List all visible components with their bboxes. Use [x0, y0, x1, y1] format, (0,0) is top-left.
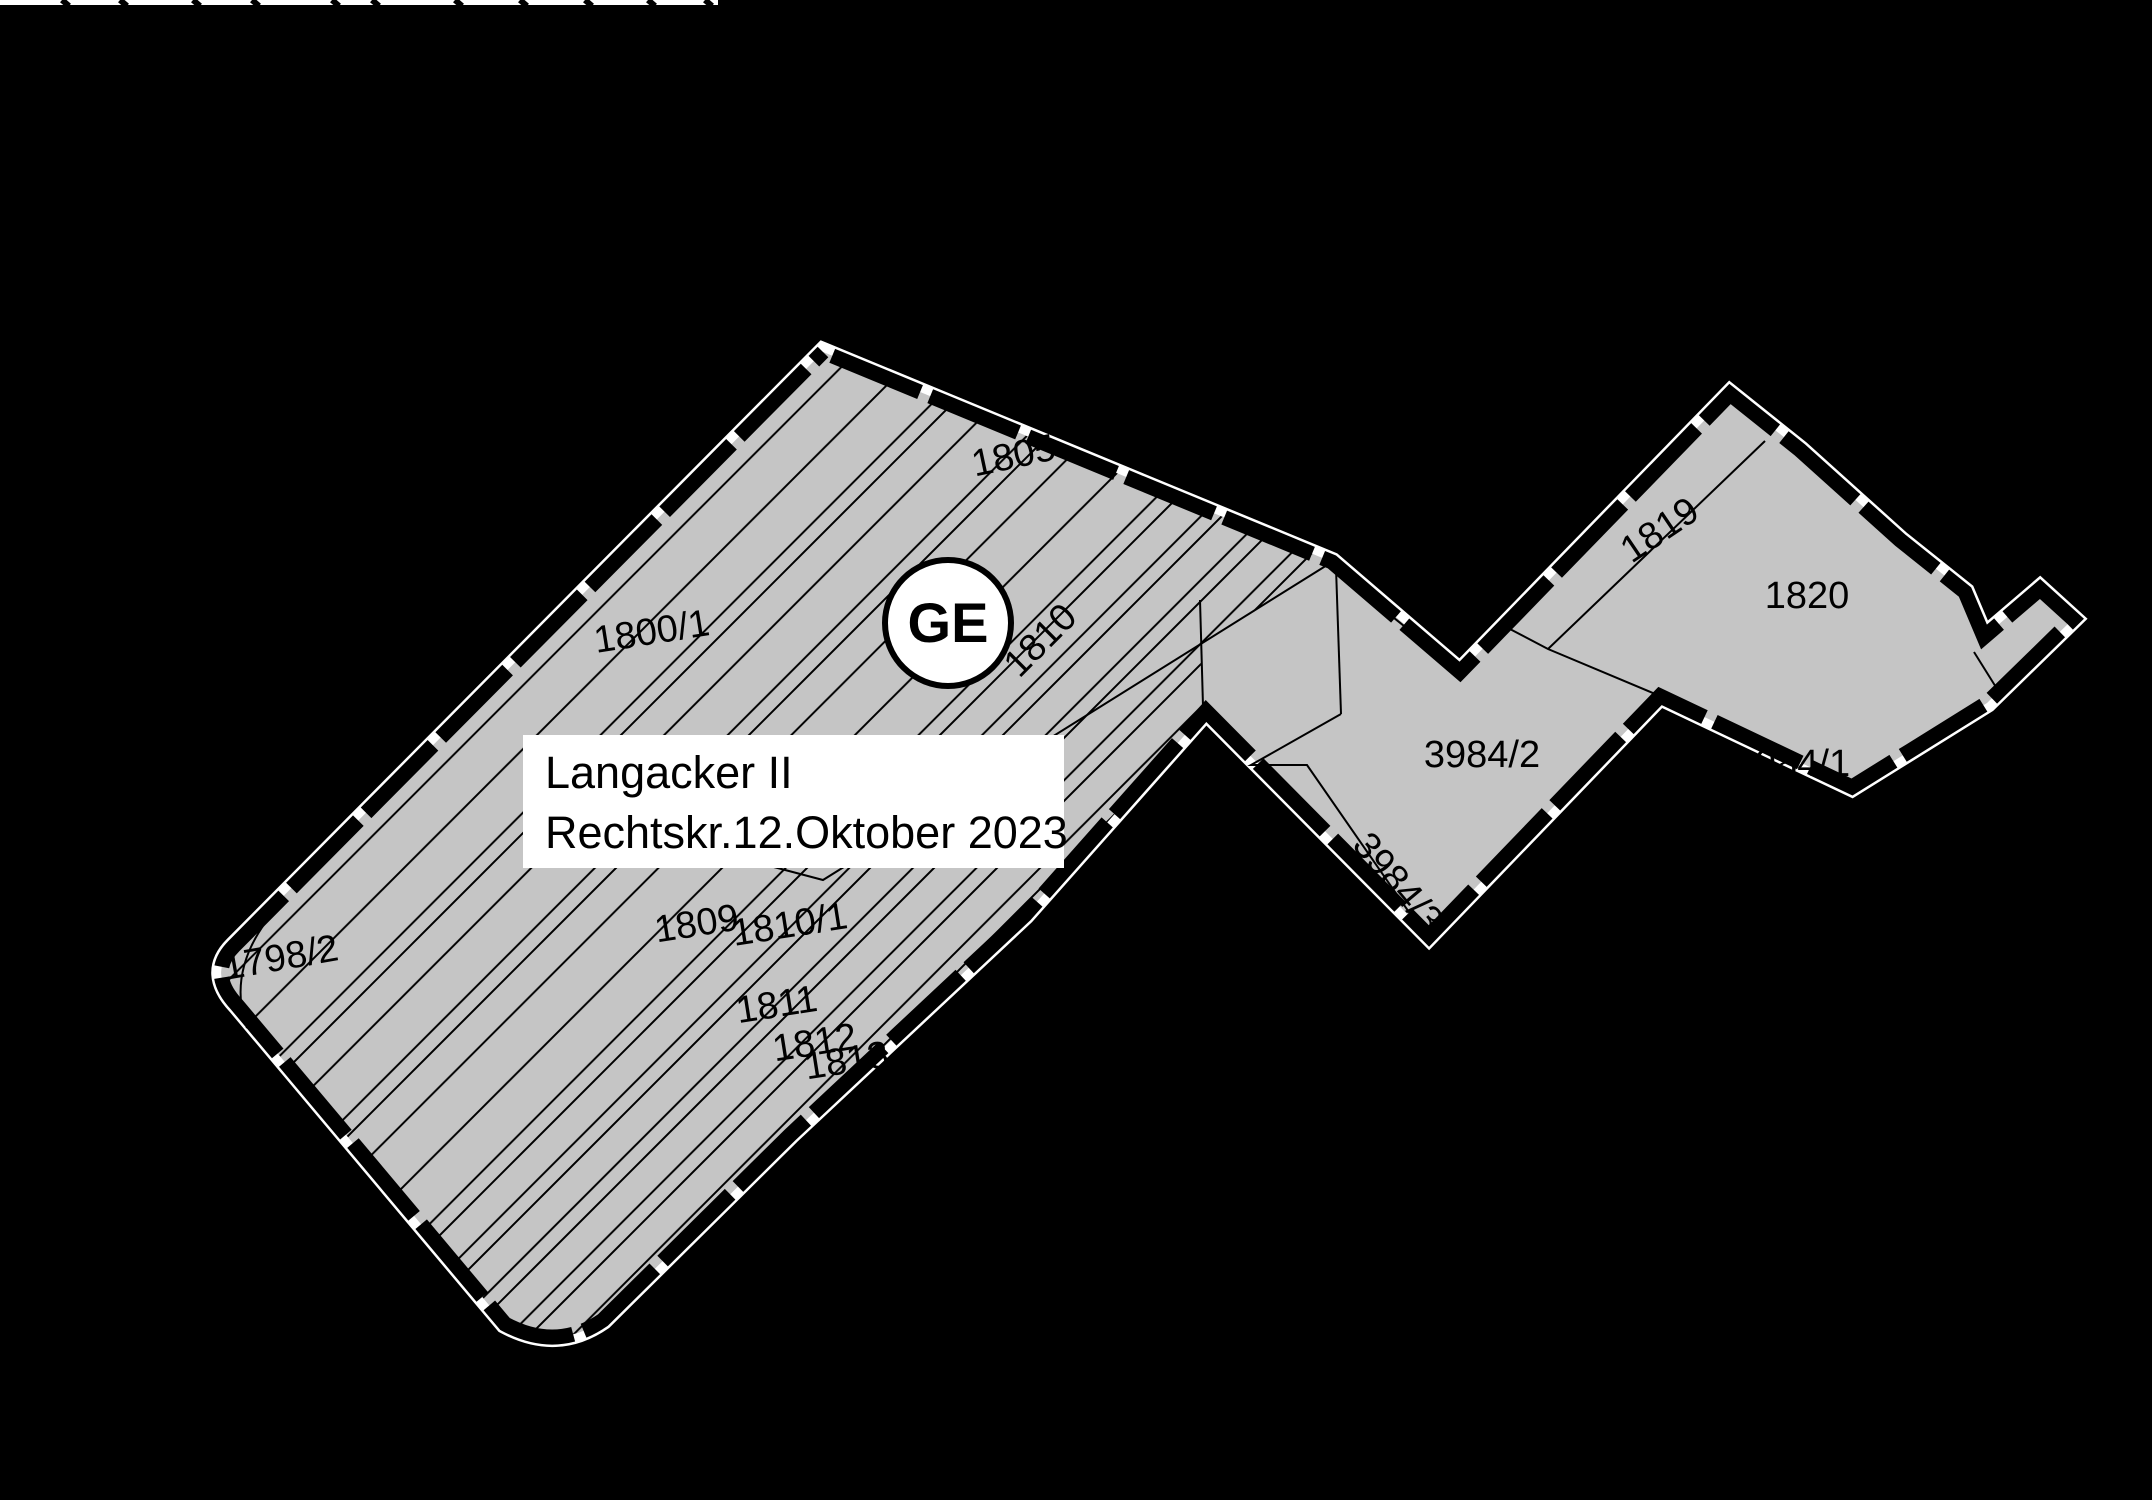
- svg-text:GE: GE: [908, 591, 989, 654]
- svg-text:3984/2: 3984/2: [1424, 734, 1540, 776]
- svg-text:Rechtskr.12.Oktober 2023: Rechtskr.12.Oktober 2023: [545, 807, 1068, 858]
- svg-text:1820: 1820: [1765, 575, 1850, 617]
- svg-text:Langacker II: Langacker II: [545, 747, 793, 798]
